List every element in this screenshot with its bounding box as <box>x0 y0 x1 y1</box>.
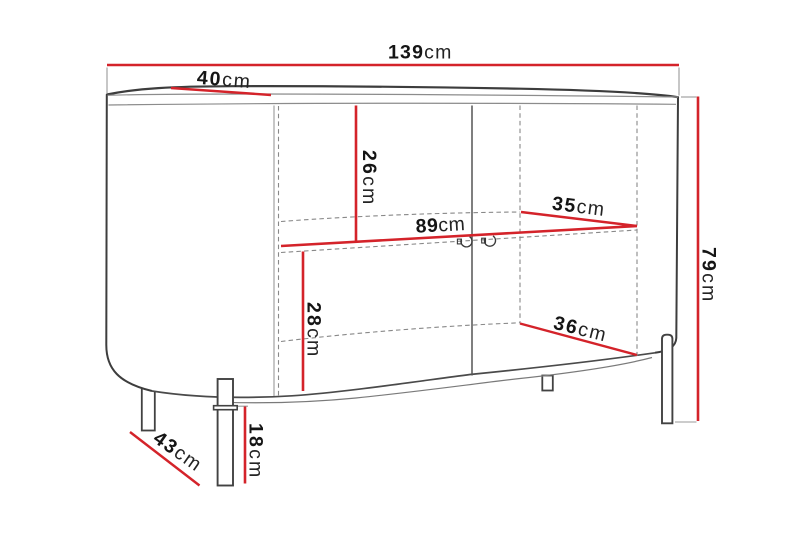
svg-text:89cm: 89cm <box>415 213 466 238</box>
svg-text:28cm: 28cm <box>302 302 324 359</box>
svg-text:40cm: 40cm <box>196 67 252 93</box>
svg-text:18cm: 18cm <box>245 423 267 480</box>
svg-text:79cm: 79cm <box>697 247 719 304</box>
svg-text:139cm: 139cm <box>388 42 453 64</box>
svg-text:26cm: 26cm <box>358 150 380 207</box>
